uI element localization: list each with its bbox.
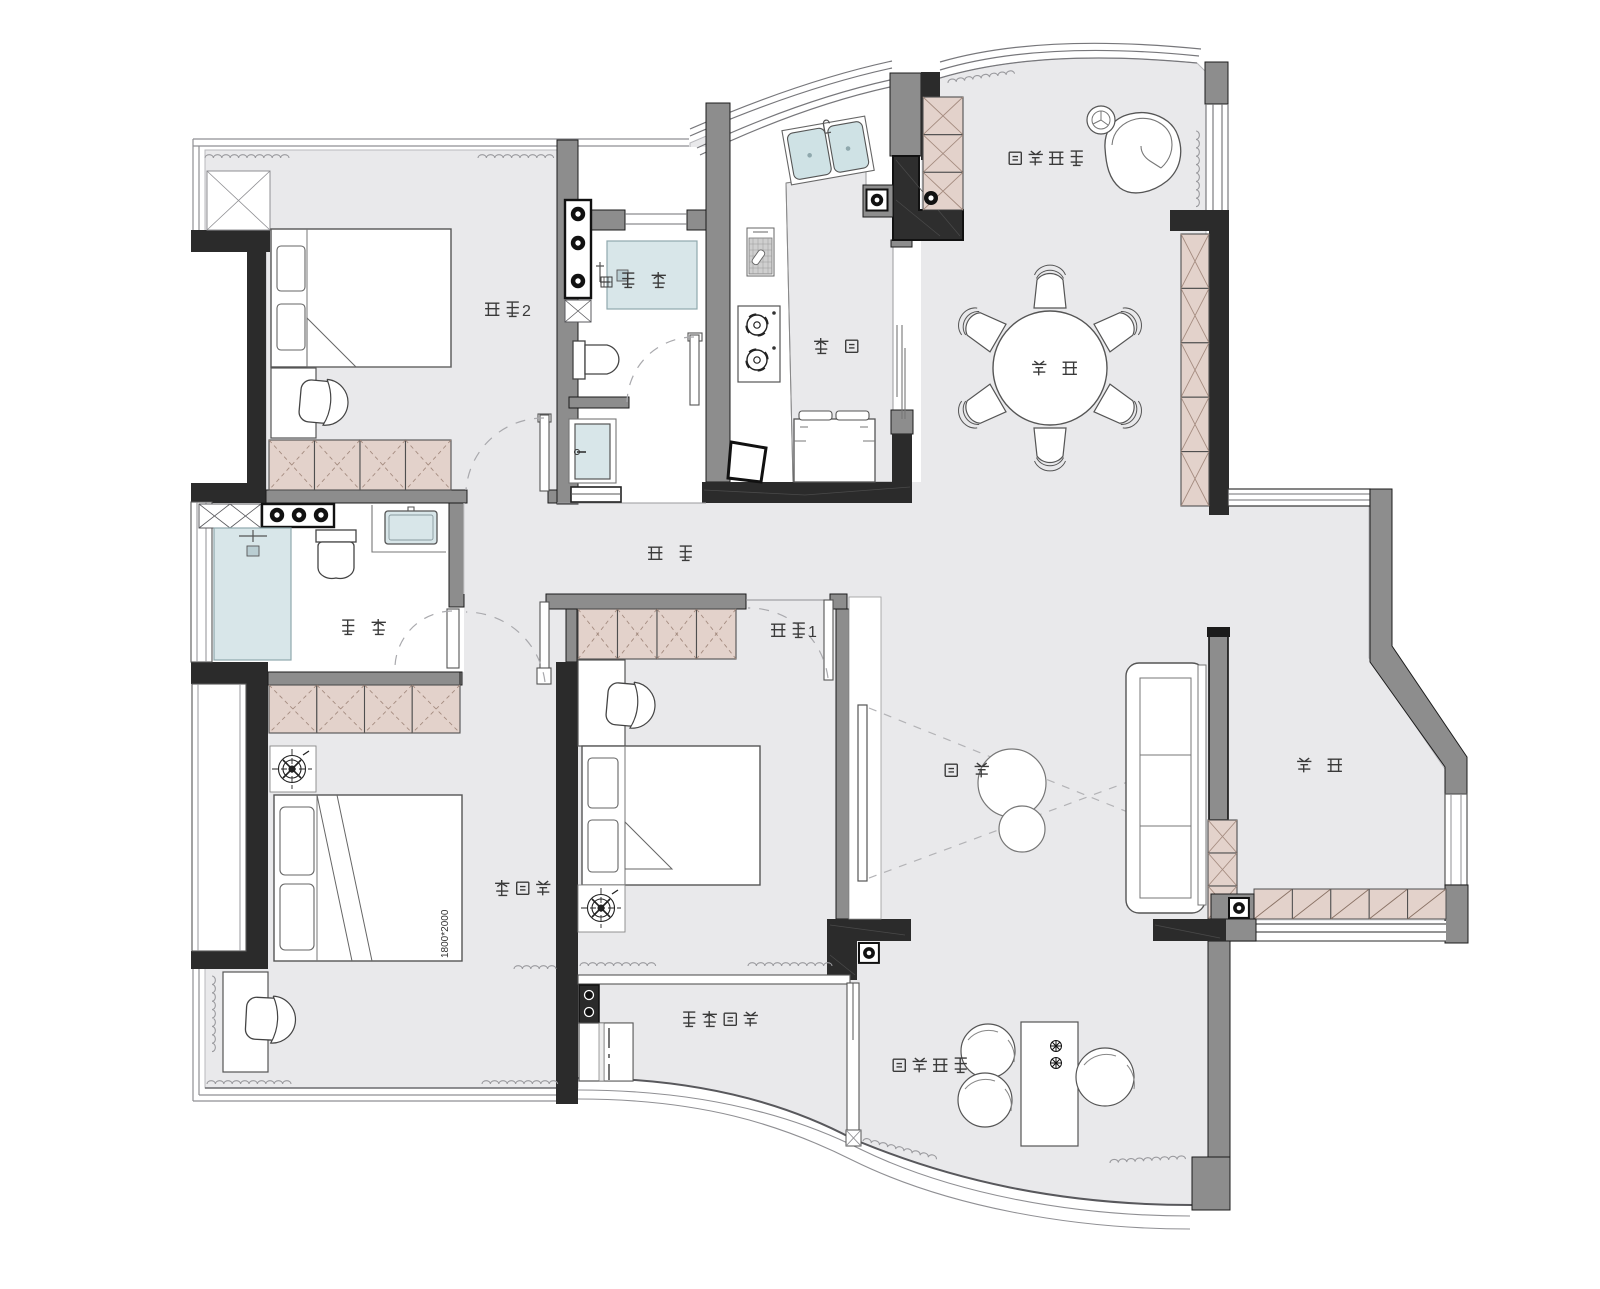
- svg-text:1: 1: [808, 624, 817, 641]
- svg-text:1800*2000: 1800*2000: [440, 909, 451, 958]
- svg-text:2: 2: [522, 303, 531, 320]
